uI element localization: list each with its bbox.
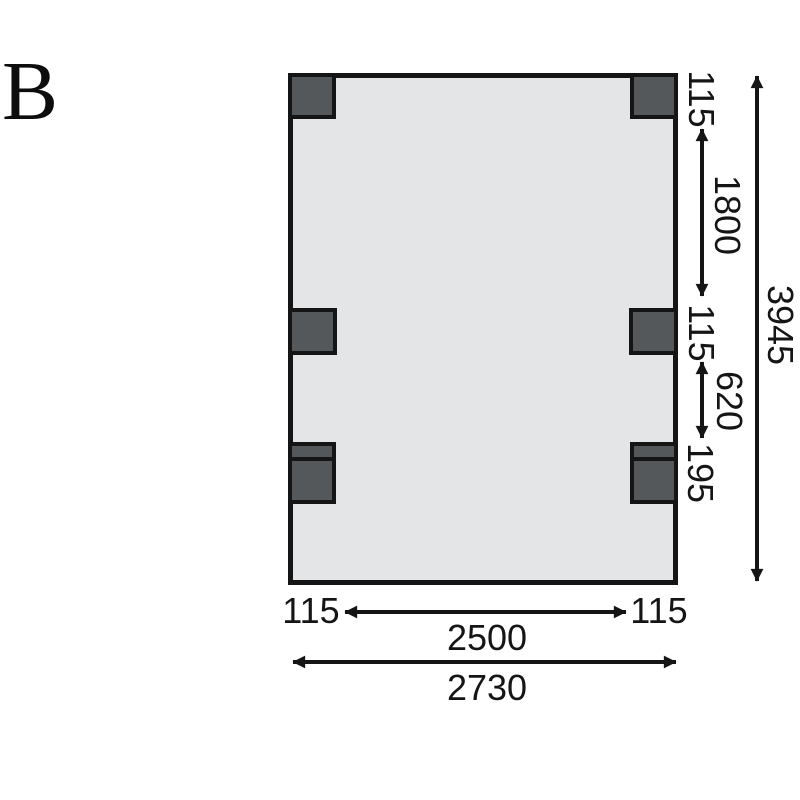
post-bottom-right-double (630, 442, 678, 504)
plan-outline (288, 73, 678, 585)
dim-span-center: 2500 (447, 620, 527, 656)
post-bottom-left-double (288, 442, 336, 504)
dim-width-total: 2730 (447, 670, 527, 706)
dim-edge-left: 115 (282, 593, 339, 629)
variant-label: B (2, 50, 58, 134)
dim-bay-mid: 620 (711, 371, 747, 431)
post-divider (634, 457, 674, 461)
foundation-plan-drawing: B 115 1800 115 620 195 3945 115 2500 115… (0, 0, 800, 800)
post-middle-right (629, 308, 678, 355)
post-top-right (630, 73, 678, 119)
post-divider (292, 457, 332, 461)
dim-post-top: 115 (683, 70, 719, 127)
dim-depth-total: 3945 (762, 285, 798, 365)
dim-post-double: 195 (682, 443, 718, 503)
dim-post-mid: 115 (683, 304, 719, 361)
dim-bay-top: 1800 (709, 175, 745, 255)
post-middle-left (288, 308, 337, 355)
post-top-left (288, 73, 336, 119)
dim-edge-right: 115 (630, 593, 687, 629)
